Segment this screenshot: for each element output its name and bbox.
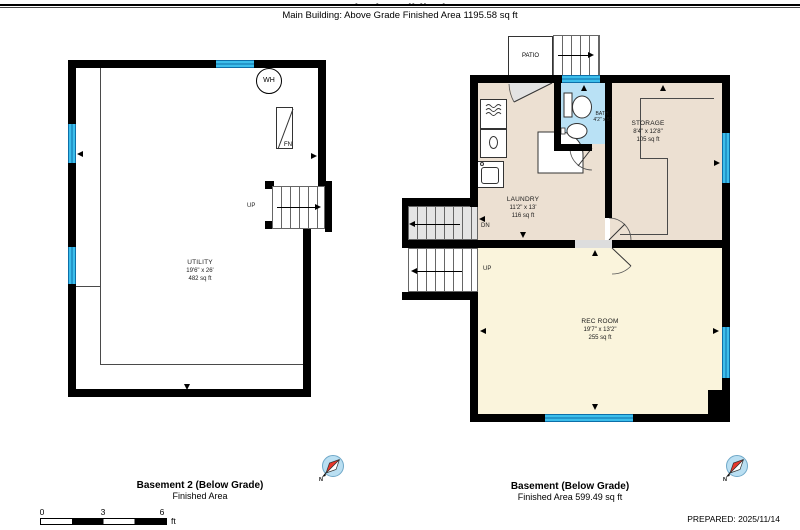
bath-wall-bottom bbox=[554, 144, 592, 151]
stairs-direction-line bbox=[277, 207, 317, 208]
water-heater-icon: WH bbox=[256, 68, 282, 94]
window bbox=[68, 247, 76, 284]
bath-wall-left bbox=[554, 83, 561, 151]
wall-bottom bbox=[68, 389, 311, 397]
water-heater-label: WH bbox=[263, 77, 275, 84]
storage-wall bbox=[605, 83, 612, 218]
window bbox=[545, 414, 633, 422]
storage-detail-line bbox=[640, 98, 714, 99]
window bbox=[68, 124, 76, 163]
dimension-arrow-icon bbox=[520, 232, 526, 238]
dimension-arrow-icon bbox=[311, 153, 317, 159]
stairs-arrow-icon bbox=[315, 204, 321, 210]
toilet-tank bbox=[564, 93, 572, 117]
corner-notch-wall bbox=[708, 390, 730, 422]
stairs-direction-line bbox=[414, 224, 460, 225]
room-dims: 19'6" x 26' bbox=[155, 267, 245, 275]
compass-north-label: N bbox=[723, 477, 727, 483]
wall-right-lower bbox=[303, 228, 311, 397]
dimension-arrow-icon bbox=[480, 328, 486, 334]
prepared-date: PREPARED: 2025/11/14 bbox=[576, 514, 780, 524]
scale-bar-strip bbox=[40, 518, 167, 525]
stairwell-wall bbox=[402, 292, 478, 300]
room-area: 255 sq ft bbox=[565, 334, 635, 342]
dimension-arrow-icon bbox=[581, 85, 587, 91]
compass-icon: N bbox=[722, 452, 752, 482]
window bbox=[562, 75, 600, 83]
room-name: REC ROOM bbox=[565, 318, 635, 326]
header-subtitle: Main Building: Above Grade Finished Area… bbox=[0, 10, 800, 21]
furnace-icon: FN bbox=[276, 107, 293, 149]
dimension-arrow-icon bbox=[592, 404, 598, 410]
dimension-arrow-icon bbox=[713, 328, 719, 334]
basement-caption-subtitle: Finished Area 599.49 sq ft bbox=[470, 492, 670, 502]
room-dims: 19'7" x 13'2" bbox=[565, 326, 635, 334]
wall-divider bbox=[478, 240, 575, 248]
door-arc bbox=[505, 80, 557, 108]
dimension-arrow-icon bbox=[146, 61, 152, 67]
scale-tick-0: 0 bbox=[36, 507, 48, 517]
window bbox=[722, 133, 730, 183]
sink-basin bbox=[489, 136, 498, 149]
dimension-arrow-icon bbox=[592, 250, 598, 256]
stairs-dn-label: DN bbox=[481, 223, 490, 229]
room-dims: 8'4" x 12'8" bbox=[613, 128, 683, 136]
furnace-label: FN bbox=[284, 142, 292, 148]
dimension-arrow-icon bbox=[184, 384, 190, 390]
laundry-tub-icon bbox=[477, 161, 504, 188]
room-label-rec-room: REC ROOM 19'7" x 13'2" 255 sq ft bbox=[565, 318, 635, 342]
wall-divider bbox=[612, 240, 730, 248]
room-label-utility: UTILITY 19'6" x 26' 482 sq ft bbox=[155, 259, 245, 283]
header-rule-thin bbox=[0, 7, 800, 8]
sink-cabinet-icon bbox=[480, 129, 507, 158]
scale-unit: ft bbox=[171, 516, 176, 526]
tub-basin bbox=[481, 167, 499, 184]
stairwell-wall bbox=[402, 198, 478, 206]
stairs-arrow-icon bbox=[409, 221, 415, 227]
rec-room-door-arc bbox=[580, 246, 636, 280]
dimension-arrow-icon bbox=[479, 216, 485, 222]
header-rule-thick bbox=[0, 4, 800, 6]
room-area: 482 sq ft bbox=[155, 275, 245, 283]
wall-right-upper bbox=[318, 60, 326, 186]
window bbox=[722, 327, 730, 378]
dimension-arrow-icon bbox=[660, 85, 666, 91]
stairs-arrow-icon bbox=[588, 52, 594, 58]
finished-area-line bbox=[100, 68, 101, 364]
patio-label: PATIO bbox=[509, 53, 552, 59]
scale-tick-3: 3 bbox=[97, 507, 109, 517]
stove-heat-waves bbox=[484, 103, 504, 117]
storage-detail-line bbox=[667, 158, 668, 235]
room-label-laundry: LAUNDRY 11'2" x 13' 116 sq ft bbox=[488, 196, 558, 220]
room-name: STORAGE bbox=[613, 120, 683, 128]
stairs-up-label: UP bbox=[483, 266, 491, 272]
wall-left-lower bbox=[470, 293, 478, 422]
wall-top bbox=[68, 60, 326, 68]
window bbox=[216, 60, 254, 68]
sink-faucet bbox=[561, 128, 565, 134]
dimension-arrow-icon bbox=[77, 151, 83, 157]
room-name: LAUNDRY bbox=[488, 196, 558, 204]
room-area: 116 sq ft bbox=[488, 212, 558, 220]
stairs-arrow-icon bbox=[411, 268, 417, 274]
bath-sink bbox=[567, 124, 587, 139]
patio: PATIO bbox=[508, 36, 553, 77]
room-name: UTILITY bbox=[155, 259, 245, 267]
dimension-arrow-icon bbox=[714, 160, 720, 166]
door-threshold bbox=[575, 240, 612, 248]
storage-detail-line bbox=[640, 158, 668, 159]
floorplan-page: (Main Building) Main Building: Above Gra… bbox=[0, 0, 800, 530]
stairwell-end-wall bbox=[325, 181, 332, 232]
compass-icon: N bbox=[318, 452, 348, 482]
stairs-down bbox=[408, 206, 478, 240]
wall-left bbox=[68, 60, 76, 397]
scale-tick-6: 6 bbox=[156, 507, 168, 517]
tub-faucet bbox=[480, 162, 484, 166]
room-dims: 4'2" x 5' bbox=[584, 117, 620, 123]
stairs-direction-line bbox=[558, 55, 590, 56]
compass-north-label: N bbox=[319, 477, 323, 483]
basement-caption-title: Basement (Below Grade) bbox=[470, 481, 670, 492]
finished-area-line bbox=[76, 286, 100, 287]
wall-top bbox=[470, 75, 730, 83]
basement2-caption-subtitle: Finished Area bbox=[100, 491, 300, 501]
finished-area-line bbox=[100, 364, 304, 365]
basement2-caption-title: Basement 2 (Below Grade) bbox=[100, 480, 300, 491]
room-dims: 11'2" x 13' bbox=[488, 204, 558, 212]
wall-left-upper bbox=[470, 75, 478, 207]
stairs-direction-line bbox=[416, 271, 462, 272]
room-label-storage: STORAGE 8'4" x 12'8" 105 sq ft bbox=[613, 120, 683, 144]
wall-divider bbox=[404, 240, 478, 248]
room-label-bath: BATH 4'2" x 5' bbox=[584, 111, 620, 123]
stairs-up-label: UP bbox=[247, 203, 255, 209]
stairs-up bbox=[408, 248, 478, 292]
room-area: 105 sq ft bbox=[613, 136, 683, 144]
stove-icon bbox=[480, 99, 507, 129]
